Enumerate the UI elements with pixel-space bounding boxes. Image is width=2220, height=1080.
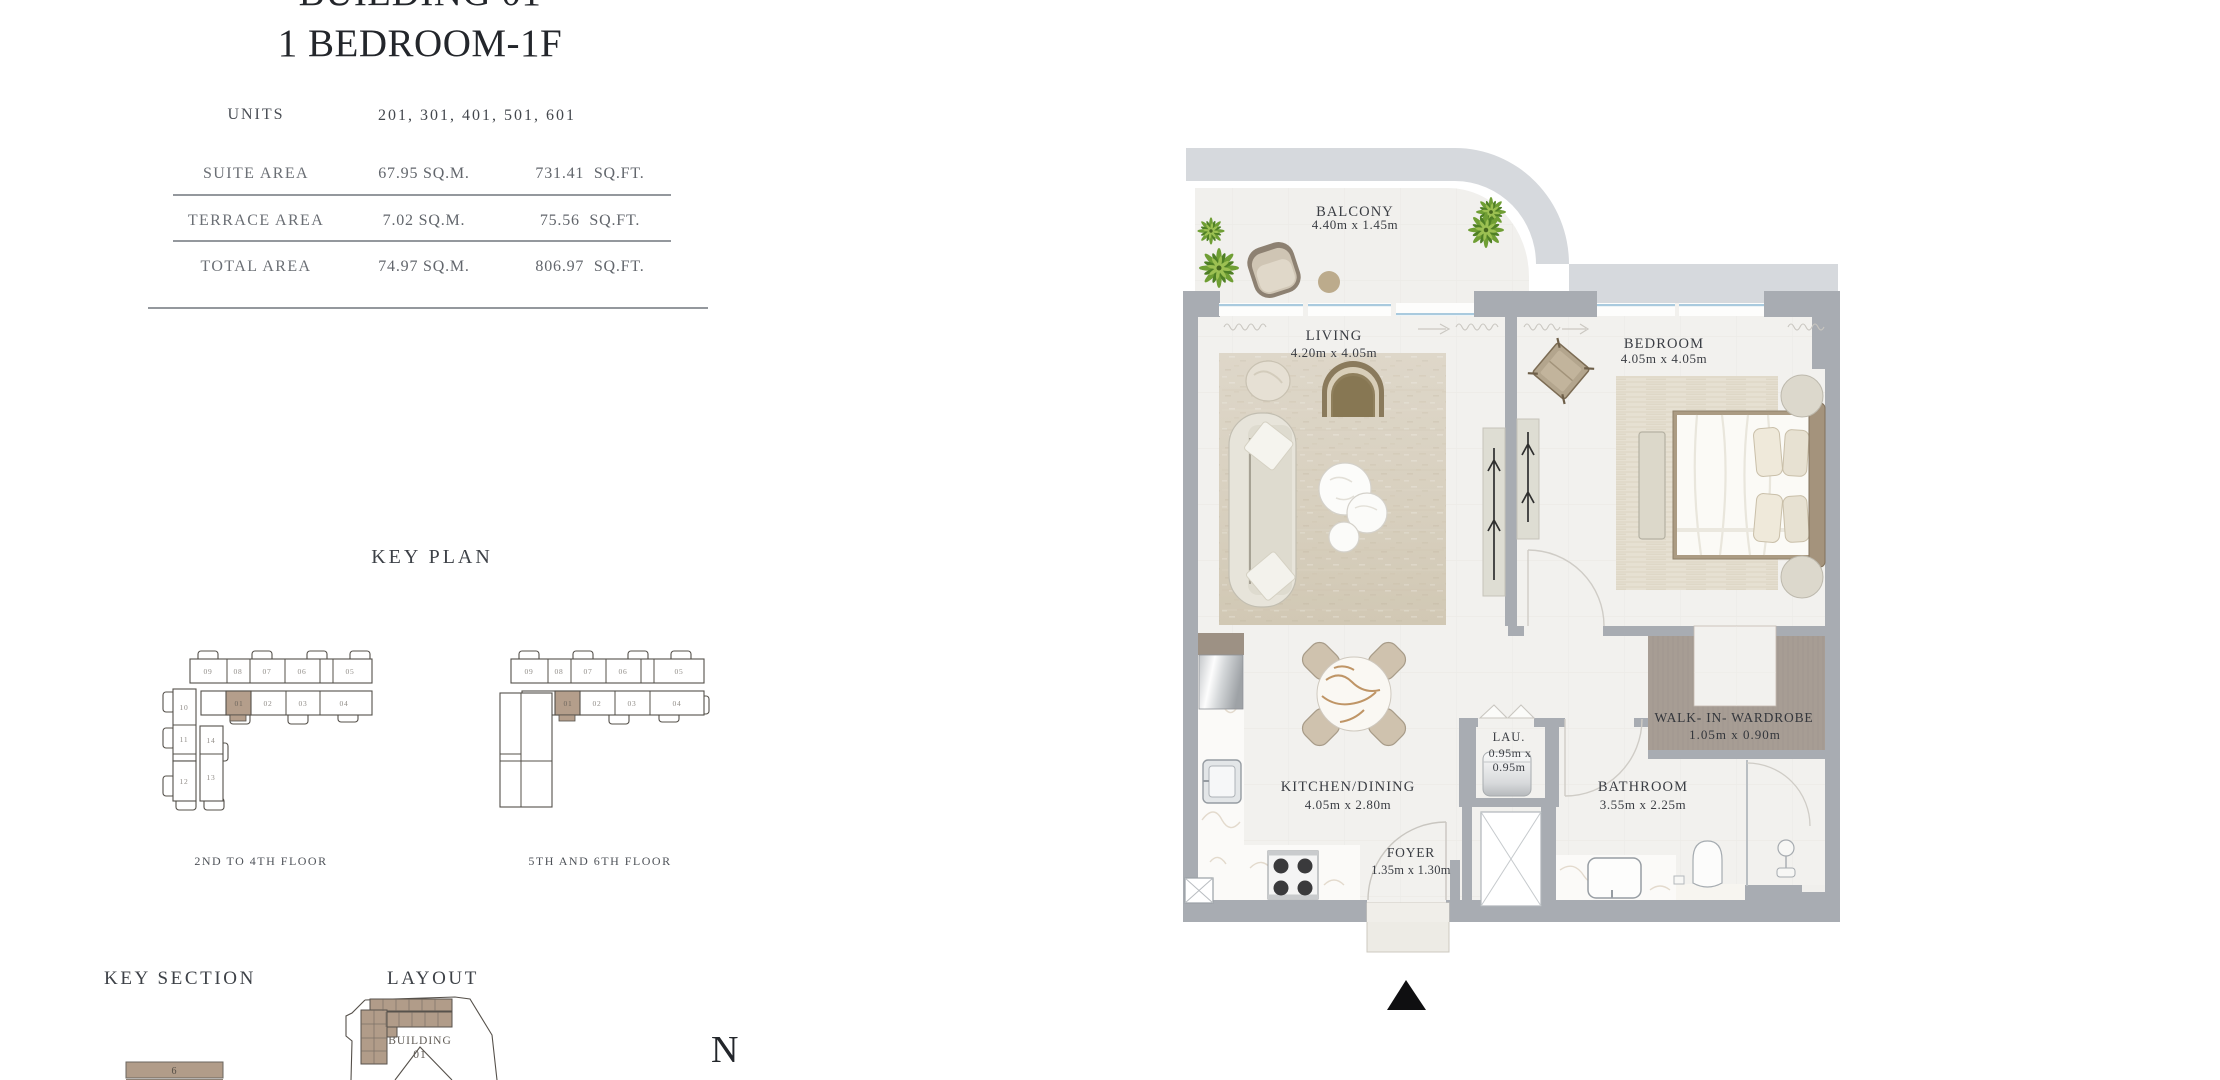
svg-text:14: 14: [206, 736, 215, 745]
svg-text:4.05m x 2.80m: 4.05m x 2.80m: [1305, 797, 1392, 812]
svg-text:02: 02: [592, 699, 601, 708]
svg-text:0.95m x: 0.95m x: [1489, 746, 1532, 760]
svg-text:4.40m x 1.45m: 4.40m x 1.45m: [1312, 217, 1399, 232]
svg-text:07: 07: [262, 667, 271, 676]
svg-text:02: 02: [263, 699, 272, 708]
svg-text:04: 04: [672, 699, 681, 708]
svg-text:WALK- IN- WARDROBE: WALK- IN- WARDROBE: [1655, 710, 1814, 725]
svg-text:01: 01: [413, 1049, 427, 1061]
svg-text:4.05m x 4.05m: 4.05m x 4.05m: [1621, 351, 1708, 366]
svg-text:12: 12: [179, 777, 188, 786]
svg-text:BEDROOM: BEDROOM: [1624, 336, 1704, 352]
svg-text:04: 04: [339, 699, 348, 708]
svg-text:11: 11: [180, 735, 189, 744]
svg-text:FOYER: FOYER: [1387, 845, 1435, 860]
svg-text:01: 01: [234, 699, 243, 708]
svg-text:BATHROOM: BATHROOM: [1598, 779, 1688, 795]
svg-text:09: 09: [524, 667, 533, 676]
svg-text:03: 03: [298, 699, 307, 708]
svg-text:1.35m x 1.30m: 1.35m x 1.30m: [1371, 863, 1451, 877]
svg-text:13: 13: [206, 773, 215, 782]
svg-text:LIVING: LIVING: [1306, 328, 1363, 344]
svg-text:10: 10: [179, 703, 188, 712]
svg-text:01: 01: [563, 699, 572, 708]
svg-text:05: 05: [345, 667, 354, 676]
svg-text:4.20m x 4.05m: 4.20m x 4.05m: [1291, 345, 1378, 360]
svg-text:LAU.: LAU.: [1493, 730, 1526, 744]
svg-text:08: 08: [554, 667, 563, 676]
svg-text:6: 6: [172, 1066, 177, 1077]
svg-text:KITCHEN/DINING: KITCHEN/DINING: [1281, 779, 1416, 795]
svg-text:1.05m x 0.90m: 1.05m x 0.90m: [1689, 727, 1781, 742]
svg-text:05: 05: [674, 667, 683, 676]
svg-text:08: 08: [233, 667, 242, 676]
svg-text:0.95m: 0.95m: [1493, 760, 1526, 774]
svg-text:03: 03: [627, 699, 636, 708]
svg-text:06: 06: [618, 667, 627, 676]
svg-text:09: 09: [203, 667, 212, 676]
svg-text:BUILDING: BUILDING: [388, 1035, 452, 1047]
svg-text:06: 06: [297, 667, 306, 676]
svg-text:07: 07: [583, 667, 592, 676]
svg-text:3.55m x 2.25m: 3.55m x 2.25m: [1600, 797, 1687, 812]
